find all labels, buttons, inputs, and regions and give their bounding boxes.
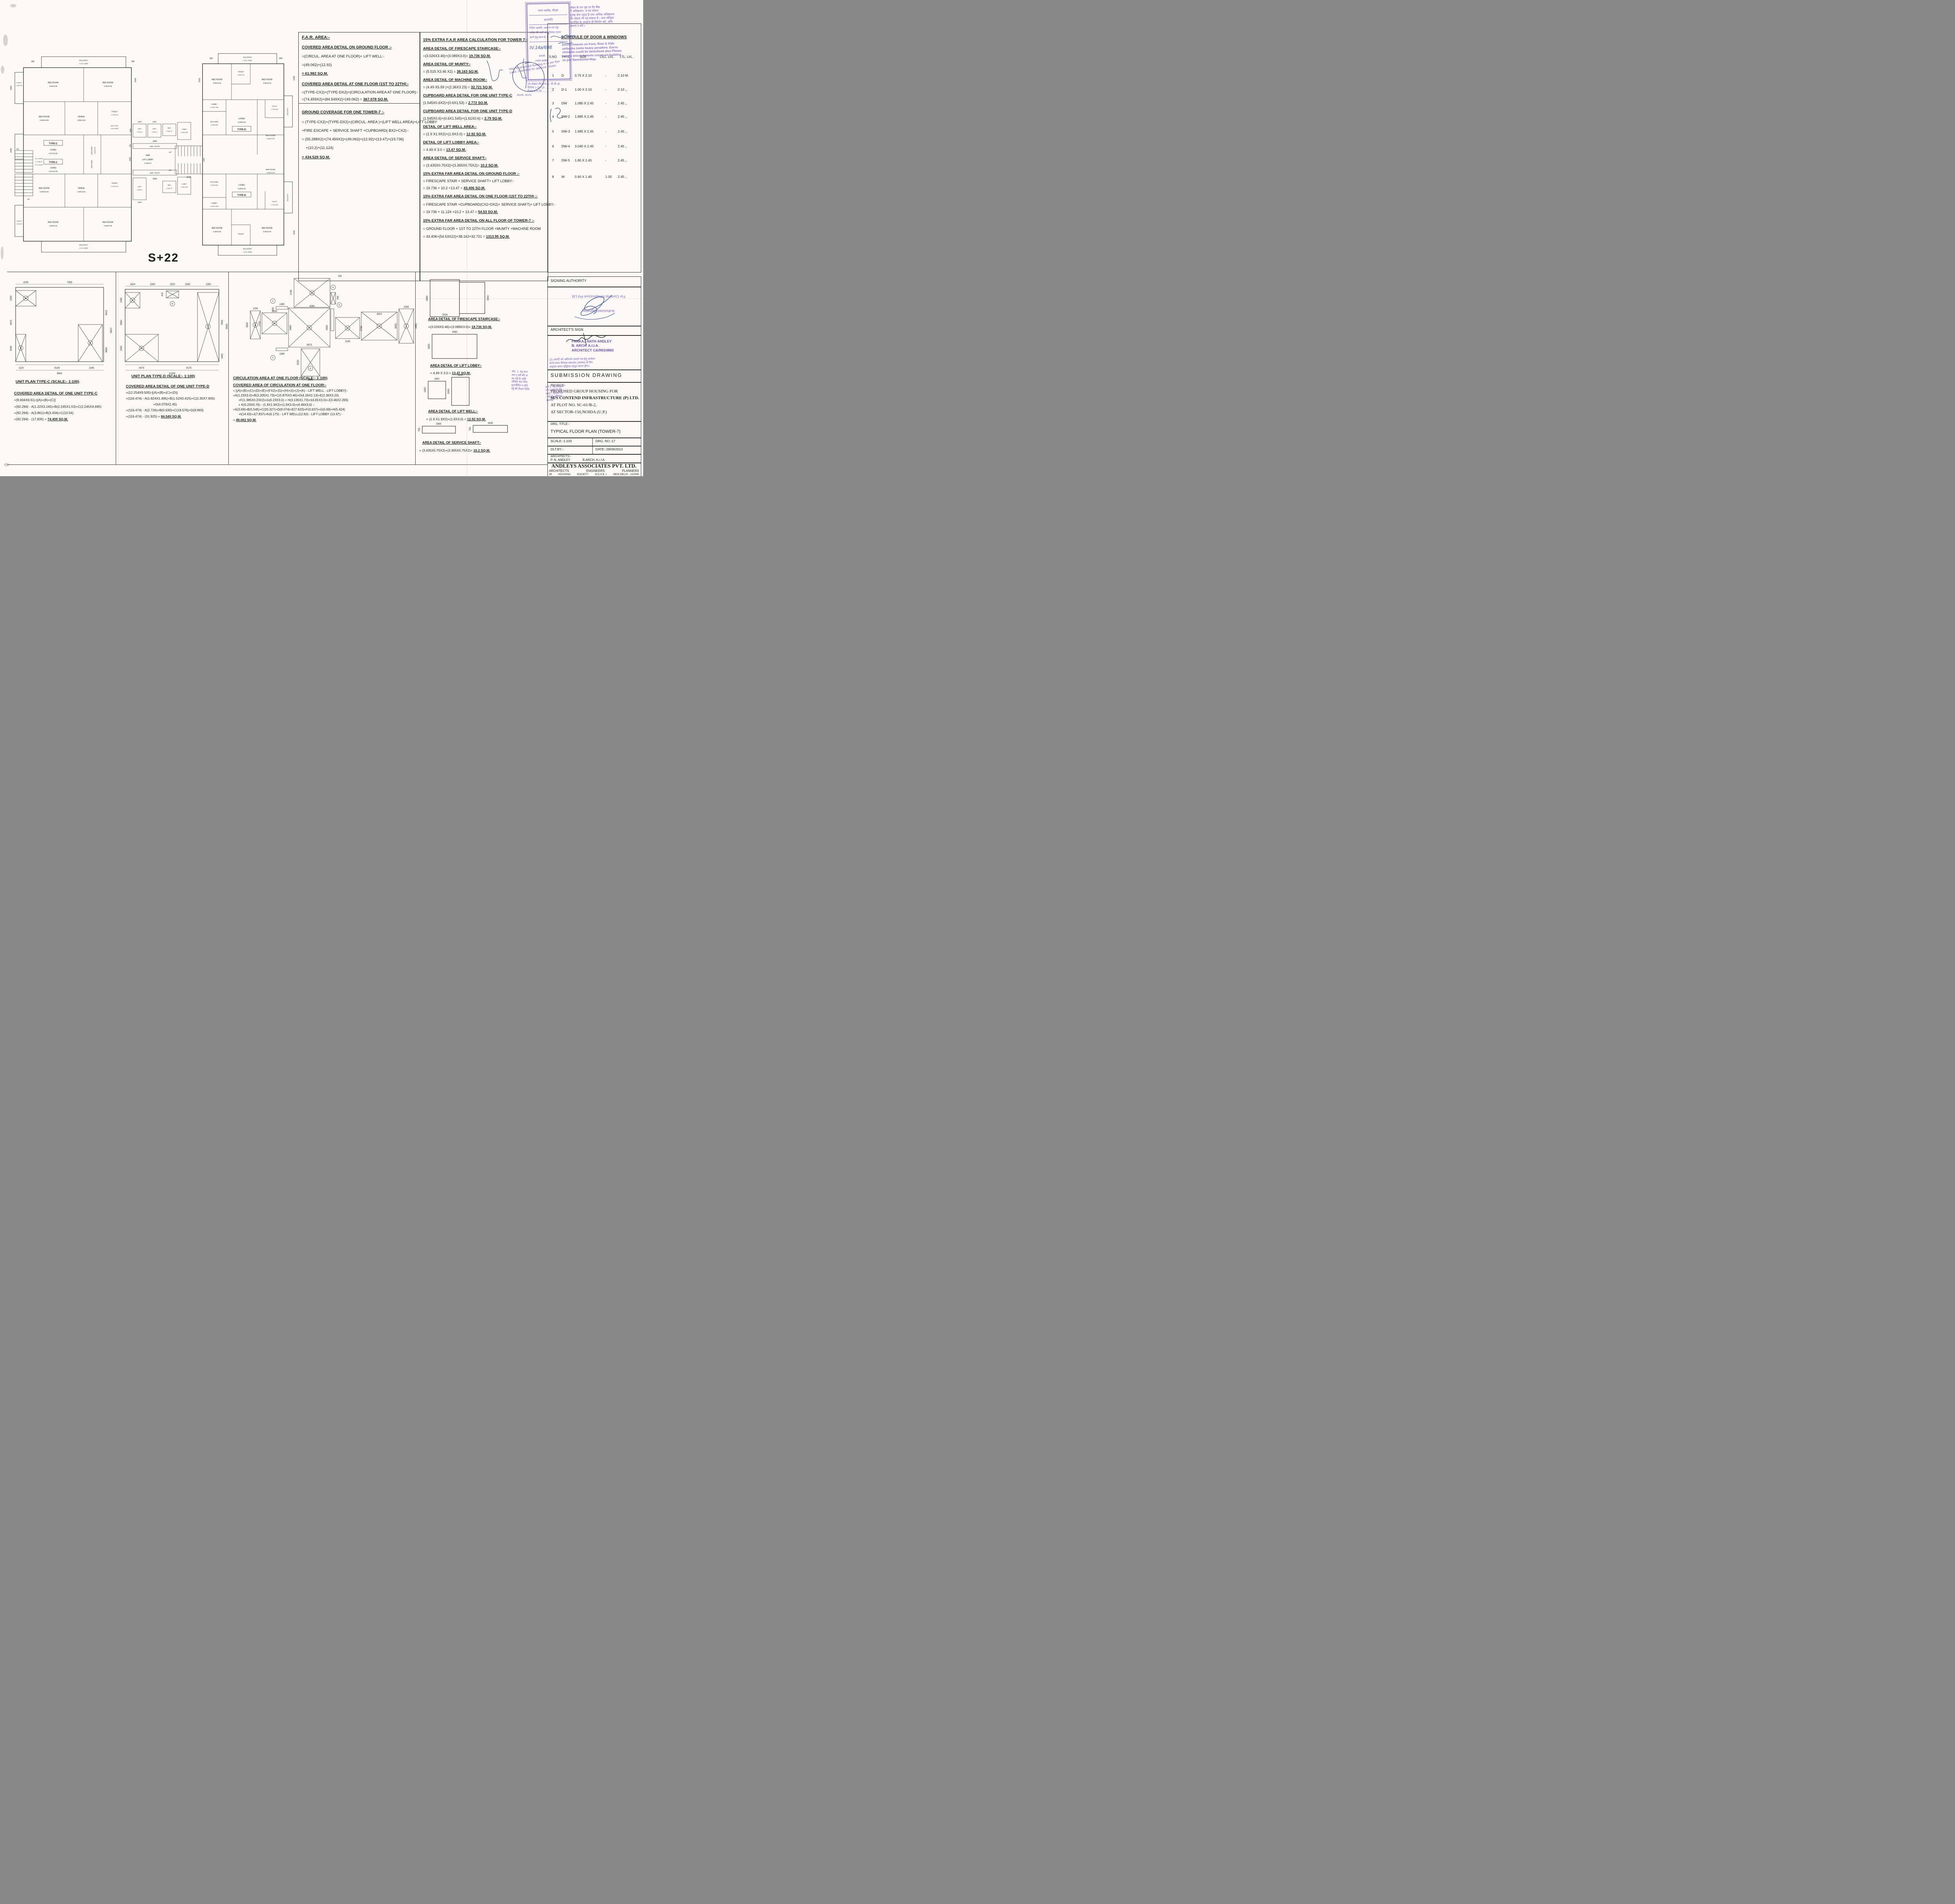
room-size: 2.13x1.52: [16, 223, 22, 225]
dlt-by: DLT.BY.:-: [551, 448, 564, 451]
ref-mark: D: [311, 292, 313, 294]
room-label: BALCONY: [243, 56, 252, 58]
dim-label: 2130: [290, 290, 292, 295]
room-label: BED ROOM: [48, 221, 58, 224]
extra-item-heading: AREA DETAIL OF MUMTY:-: [423, 63, 471, 66]
stair-label: DN: [16, 148, 19, 150]
extra-item-formula: = 43.406+(54.53X22)+38.163+32.721 = 1313…: [423, 235, 509, 239]
room-label: W.C: [168, 127, 171, 129]
lift-well-heading: AREA DETAIL OF LIFT WELL:-: [428, 410, 478, 414]
ref-mark: B: [25, 298, 27, 300]
circulation-line: =A(3.69)+B(5.545)+C(20.327)+D(9.074)+E(7…: [233, 408, 345, 411]
dim-label: 3205: [272, 310, 277, 313]
dim-label: 4695: [106, 347, 108, 353]
stamp-line: भवन प्रकोष्ठ, नौएडा: [527, 8, 569, 13]
schedule-cell: -: [605, 102, 606, 105]
stamp-line: वैधता 5.4.25 .............: [527, 89, 561, 93]
schedule-cell: 4: [552, 115, 554, 118]
circulation-line: = [(A)+(B)+(C)+(D)+(E)+(FX2)+(G)+(H)+(I)…: [233, 389, 348, 393]
dim-label: 2350: [206, 283, 211, 286]
dim-label: 3280: [150, 283, 155, 286]
stamp-line: अनापत्ति: [527, 18, 569, 22]
dim-label: 3000: [448, 389, 450, 394]
room-size: 3.05X3.66: [263, 231, 271, 233]
unit-type-label: TYPE-C: [49, 161, 58, 164]
ground-coverage-result: = 434.528 SQ.M.: [302, 156, 330, 160]
extra-item-heading: CUPBOARD AREA DETAIL FOR ONE UNIT TYPE-D: [423, 109, 512, 113]
room-size: 2.13x1.52: [111, 114, 118, 116]
room-label: KITCHEN: [210, 181, 218, 183]
room-label: KITCHEN: [210, 121, 218, 123]
extra-item-line: = GROUND FLOOR + 1ST TO 22TH FLOOR +MUMT…: [423, 227, 541, 231]
dim-label: 3280: [185, 283, 190, 286]
date-value: DATE:-29/08/2013: [595, 448, 623, 451]
far-s1-line: =(CIRCUL. AREA AT ONE FLOOR)+ LIFT WELL:…: [302, 55, 384, 59]
room-label: BALCONY: [111, 125, 118, 127]
unit-d-heading: COVERED AREA DETAIL OF ONE UNIT TYPE-D: [126, 385, 209, 389]
ref-mark: E: [310, 368, 311, 370]
room-label: BED ROOM: [48, 82, 58, 84]
stair-note: W.=1.50 M.: [35, 158, 43, 160]
room-size: 3.974X3.05: [48, 152, 58, 154]
extra-item-heading: DETAIL OF LIFT WELL AREA:-: [423, 125, 477, 129]
dim-label: 2450: [120, 346, 123, 351]
schedule-cell: -: [605, 88, 606, 91]
dim-label: 7905: [221, 320, 224, 325]
room-label: BALCONY: [79, 244, 88, 246]
dim-label: 9604: [57, 373, 62, 375]
room-size: 2.13X2.335: [181, 186, 188, 188]
unit-d-line: =(116.474) - A(2.726)+B(0.630)+C(18.576)…: [126, 409, 204, 412]
encroachment-stamp-hindi: अंकर के यग पृष्ठ पर मैट बैंक में अतिक्रम…: [570, 5, 615, 28]
schedule-cell: 7: [552, 159, 554, 162]
room-label: BED ROOM: [212, 227, 222, 229]
dim-label: 2245: [89, 367, 94, 369]
dim-label: 3000: [326, 325, 328, 330]
schedule-cell: DW-2: [561, 115, 570, 118]
room-label: BED ROOM: [102, 82, 113, 84]
room-label: BED ROOM: [39, 187, 49, 190]
ground-coverage-line: +(10.2)+(11.124): [306, 146, 334, 150]
stair-label: UP: [169, 151, 171, 153]
stair-label: DN: [169, 169, 172, 171]
schedule-cell: 1.885 X 2.45: [575, 115, 594, 118]
room-label: LOBBY: [181, 183, 187, 185]
dim-label: 1495: [120, 298, 123, 303]
ref-mark: G: [339, 304, 340, 307]
stamp-line: प्रभारी: [539, 55, 545, 58]
room-label: LIVING: [50, 149, 57, 151]
room-size: 3.974X3.05: [48, 170, 58, 172]
schedule-cell: 0.60 X 1.40: [575, 175, 592, 179]
room-size: 1.5 M. WIDE: [111, 128, 119, 129]
ground-coverage-line: = (TYPE-CX2)+(TYPE-DX2)+(CIRCUL. AREA )+…: [302, 120, 437, 124]
dim-label: 600: [279, 57, 283, 60]
room-size: 3.964X3.05: [39, 119, 49, 121]
dim-label: 1500: [203, 158, 205, 162]
extra-item-formula: (1.545X0.6X2)+(0.6X1.53) = 2.772 SQ.M.: [423, 101, 488, 105]
schedule-cell: 2.45 ,,: [618, 159, 627, 162]
dim-label: 1520: [170, 283, 175, 286]
circulation-line: + K(0.23X0.76) - (1.9X1.9X2)+(1.9X3.0)+(…: [239, 403, 315, 407]
dim-label: 3460: [426, 296, 429, 301]
room-label: BALCONY: [79, 59, 88, 61]
dim-label: 3135: [345, 341, 350, 343]
architects-sign-label: ARCHITECT'S SIGN: [551, 328, 583, 332]
room-label: TOILET: [16, 82, 22, 84]
unit-d-result: =(116.474) - (31.925) = 84.549 SQ.M.: [126, 415, 181, 418]
dim-label: 3460: [290, 325, 292, 330]
extra-item-formula: = 19.736 + 10.2 +13.47 = 43.406 SQ.M.: [423, 186, 485, 190]
unit-c-line: =(9.604X9.61)-[(A)+(B)+(C)]: [14, 398, 56, 402]
room-size: 1.5 M. WIDE: [243, 59, 252, 61]
dim-label: 600: [131, 61, 135, 63]
dim-label: 1230: [253, 308, 258, 310]
dim-label: 1385: [279, 303, 285, 306]
schedule-cell: -: [605, 74, 606, 77]
dim-label: 750: [469, 427, 472, 431]
dim-label: 3000: [129, 157, 131, 161]
unit-c-line: =(92.294) - A(3.861)+B(3.434)+C(10.54): [14, 411, 74, 415]
circulation-result: = 49.062 SQ.M.: [233, 418, 256, 422]
room-label: TOILET: [238, 233, 244, 235]
room-label: TOILET: [272, 201, 277, 203]
schedule-cell: 1.080 X 2.45: [575, 102, 594, 105]
schedule-cell: 1.685 X 2.45: [575, 130, 594, 133]
circulation-line: +F(1.385X0.23X2)+G(0.23X3.0) + H(3.135X1…: [239, 398, 348, 402]
schedule-cell: 2.45 ,,: [618, 130, 627, 133]
room-label: LIFT LOBBY: [142, 159, 154, 161]
schedule-cell: DW: [561, 102, 567, 105]
firm-address-part: SOCIETY: [577, 473, 588, 476]
room-label: BED ROOM: [266, 134, 276, 136]
room-label: DINING: [78, 187, 85, 190]
extra-item-formula: =(3.026X3.46)+(3.089X3.0)= 19.736 SQ.M.: [423, 54, 491, 58]
note-stamp: नोट: 1. यह मान लय 5 वर्ष की अ का पट्टे क…: [511, 370, 530, 391]
room-label: BED ROOM: [39, 116, 49, 118]
firm-address: 39 HOUSING SOCIETY N.D.S.E.-I NEW DELHI …: [549, 473, 639, 476]
dim-label: 3000: [395, 323, 397, 329]
architect-qualification: B.ARCH. A.I.I.A.: [583, 459, 605, 462]
ref-mark: A: [255, 324, 256, 326]
schedule-cell: DW-4: [561, 145, 570, 148]
schedule-cell: 2.10 M.: [618, 74, 629, 77]
drg-no: DRG. NO.:17: [595, 439, 615, 443]
dim-label: 750: [418, 427, 421, 432]
room-size: 4.49X3.0: [144, 162, 152, 164]
schedule-cell: 1.05: [605, 175, 612, 179]
extra-item-heading: 15% EXTRA FAR AREA DETAIL ON ALL FLOOR O…: [423, 219, 534, 223]
room-label: LIVING: [50, 167, 57, 169]
extra-item-heading: DETAIL OF LIFT LOBBY AREA:-: [423, 141, 479, 145]
dim-label: 5875: [307, 344, 312, 346]
room-size: 2.13x1.52: [111, 185, 118, 187]
dim-label: 1900: [129, 128, 131, 133]
dim-label: 4490: [452, 331, 457, 333]
typical-floor-plan: DN UP W.=1.50 M. T.=0.30 M. R.=0.15 M. B…: [7, 22, 298, 272]
room-size: 2.12x1.37: [166, 131, 172, 132]
room-size: 2.13X2.335: [181, 132, 188, 133]
ref-mark: A: [20, 347, 22, 350]
dim-label: 1824: [130, 283, 135, 286]
schedule-cell: 3.040 X 2.45: [575, 145, 594, 148]
dim-label: 3000: [487, 295, 490, 301]
room-size: 2.13X2.335: [210, 205, 219, 207]
lift-well-formula: = (1.9 X1.9X2)+(1.9X3.0) = 12.92 SQ.M.: [426, 418, 486, 421]
dim-label: 1545: [135, 78, 137, 82]
room-size: 2.12x1.37: [166, 188, 172, 189]
dim-label: 1900: [138, 121, 142, 123]
schedule-cell: -: [605, 130, 606, 133]
dim-label: 1730: [259, 321, 261, 326]
ref-mark: F: [272, 357, 274, 359]
far-s1-heading: COVERED AREA DETAIL ON GROUND FLOOR :-: [302, 45, 392, 50]
dim-label: 760: [337, 296, 339, 300]
unit-type-label: TYPE-D: [237, 194, 246, 197]
far-s2-line: =(TYPE-CX2)+(TYPE-DX2)+(CIRCULATION AREA…: [302, 91, 418, 95]
dim-label: 1495: [293, 76, 296, 80]
room-label: BALCONY: [287, 194, 289, 201]
schedule-cell: 1.80 X 2.45: [575, 159, 592, 162]
dim-label: 1600: [221, 353, 224, 359]
far-s1-result: = 61.982 SQ.M.: [302, 72, 328, 76]
room-size: 3.05X3.05: [77, 119, 86, 121]
firm-name: ANDLEYS ASSOCIATES PVT. LTD.: [547, 463, 640, 469]
dim-label: 7359: [67, 281, 72, 284]
room-size: 3.35X5.50: [238, 188, 246, 190]
signing-authority-label: SIGNING AUTHORITY: [551, 279, 586, 283]
extra-item-line: = FIRESCAPE STAIR +CUPBOARD(CX2+DX2)+ SE…: [423, 203, 555, 207]
encroachment-stamp-english: Encrochments on front, Rear & Side setba…: [562, 41, 622, 62]
room-label: LIVING: [239, 184, 245, 186]
stair-label: UP: [27, 198, 30, 200]
schedule-cell: 2.45 ,,: [618, 115, 627, 118]
dim-label: 230: [338, 275, 342, 278]
room-label: BED ROOM: [212, 79, 222, 81]
unit-c-line: =(92.294) - A(1.22X3.165)+B(2.245X1.53)+…: [14, 405, 101, 409]
room-size: 2.13x1.52: [16, 85, 22, 86]
extra-item-formula: (1.545X0.6)+(0.6X1.545)+(1.61X0.6) = 2.7…: [423, 117, 502, 121]
room-size: 2.13X3.05: [211, 184, 218, 186]
firm-address-part: NEW DELHI - 110049: [613, 473, 639, 476]
scan-smudge: [1, 66, 4, 74]
ref-mark: K: [332, 287, 334, 289]
scale-value: SCALE:-1:100: [551, 439, 572, 443]
asstt-arch-stamp: Asstt. Arch.: [517, 93, 532, 97]
ref-mark: C: [308, 327, 310, 329]
unit-c-title: UNIT PLAN TYPE-C (SCALE:- 1:100): [16, 380, 79, 384]
dim-label: 415: [161, 292, 164, 296]
drg-title-label: DRG. TITLE:-: [551, 423, 570, 426]
room-label: TOILET: [238, 71, 244, 73]
dim-label: 4810: [377, 313, 382, 316]
stamp-line: पट्टे की वैधता तिथि: [511, 387, 529, 391]
dim-label: 1385: [279, 353, 285, 355]
unit-type-label: TYPE-D: [237, 129, 246, 131]
stamp-line: निदेश-आबंटी, आबंटन एवं पट्टा: [529, 27, 558, 30]
room-label: TOILET: [16, 220, 22, 222]
room-size: 1.9X3.0: [137, 189, 143, 191]
schedule-cell: -: [605, 159, 606, 162]
project-line: AT PLOT NO. SC-01/B-2,: [551, 403, 597, 407]
stamp-ref-lines: पत्र संख्या नौएडा/भ.प्र. वी.वी.आ. दिनांक…: [527, 82, 561, 93]
room-label: BALCONY: [287, 108, 289, 115]
room-size: 3.05X3.05: [77, 191, 86, 193]
schedule-header: LTL. LVL.: [620, 56, 633, 59]
room-size: 3.05X3.66: [213, 231, 221, 233]
room-size: 1.9X1.9: [152, 131, 158, 133]
firm-roles: ARCHITECTS ENGINEERS PLANNERS: [549, 469, 639, 473]
schedule-cell: W: [561, 175, 565, 179]
dim-label: 4079: [139, 367, 144, 369]
unit-d-line: =(116.474) - A(1.824X1.495)+B(1.52X0.415…: [126, 397, 215, 400]
room-size: 3.05X3.66: [213, 82, 221, 84]
ref-mark: C: [90, 342, 91, 344]
schedule-cell: 3: [552, 102, 554, 105]
room-label: LOBBY: [211, 202, 217, 204]
schedule-cell: -: [605, 145, 606, 148]
ref-mark: J: [406, 325, 407, 328]
room-label: KITCHEN: [91, 147, 93, 154]
dim-label: 600: [31, 61, 35, 63]
room-label: LIFT: [152, 128, 156, 130]
room-label: SER. SHAFT: [150, 145, 160, 147]
detail-diagrams: A B C 2245 7359 1530 4915 3165 1220 6139…: [7, 272, 547, 464]
dim-label: 9610: [110, 328, 113, 333]
circulation-line: =A(1.23X3.0)+B(3.205X1.73)+C(5.875X3.46)…: [233, 394, 339, 397]
room-size: 3.05X3.66: [263, 82, 271, 84]
room-label: W.C: [168, 184, 171, 186]
dim-label: 3026: [442, 314, 448, 316]
dim-label: 4490: [145, 154, 150, 157]
stamp-line: करने हेतु बाध्य है ।: [530, 36, 547, 39]
occupancy-stamp: (2) आवंटी को अधिभोग प्रमाण पत्र हेतु आवे…: [549, 358, 595, 369]
room-size: 2.13X2.335: [210, 106, 219, 108]
room-label: TOILET: [272, 105, 277, 107]
room-size: 1.9X1.9: [137, 131, 143, 133]
unit-c-heading: COVERED AREA DETAIL OF ONE UNIT TYPE-C: [14, 392, 97, 396]
ground-coverage-line: +FIRE ESCAPE + SERVICE SHAFT +CUPBOARD( …: [302, 129, 409, 133]
dim-label: 600: [210, 57, 213, 60]
dim-label: 4915: [106, 310, 108, 316]
extra-item-line: = FIRESCAPE STAIR + SERVICE SHAFT+ LIFT …: [423, 179, 514, 183]
dim-label: 1900: [138, 201, 142, 203]
extra-item-heading: 15% EXTRA FAR AREA DETAIL ON GROUND FLOO…: [423, 172, 520, 176]
ref-mark: A: [132, 299, 133, 302]
room-label: LOBBY: [181, 128, 187, 130]
extra-item-formula: = 19.736 + 11.124 +10.2 + 13.47 = 54.53 …: [423, 210, 498, 214]
drg-title: TYPICAL FLOOR PLAN (TOWER-7): [551, 429, 621, 434]
dim-label: 1530: [10, 296, 13, 301]
dim-label: 6139: [54, 367, 60, 369]
extra-item-formula: = (3.435X0.75X2)+(3.365X0.75X2)= 10.2 SQ…: [423, 164, 498, 168]
project-line: AT SECTOR-150,NOIDA (U.P.): [551, 410, 607, 414]
schedule-cell: DW-5: [561, 159, 570, 162]
dim-label: 3230: [297, 360, 300, 365]
schedule-cell: D-1: [561, 88, 567, 91]
lease-condition-stamp: शर्त 1. यह स्वीकृति पत्र 5 वर्ष हेतु वैध…: [545, 385, 565, 403]
firm-address-part: HOUSING: [558, 473, 571, 476]
ref-mark: C: [207, 326, 209, 328]
dim-label: 3365: [152, 140, 157, 143]
dim-label: 1900: [434, 378, 439, 380]
architects-label: ARCHITECTS:-: [551, 455, 571, 458]
firescape-formula: =(3.026X3.46)+(3.089X3.0)= 19.736 SQ.M.: [428, 325, 492, 329]
submission-title: SUBMISSION DRAWING: [551, 373, 622, 378]
stair-note: R.=0.15 M.: [35, 164, 43, 166]
schedule-cell: 1.00 X 2.10: [575, 88, 592, 91]
room-size: 1.52x2.13: [237, 74, 244, 76]
room-label: BALCONY: [243, 248, 252, 250]
room-size: 1.5 M. WIDE: [79, 63, 88, 65]
firm-address-part: N.D.S.E.-I: [595, 473, 607, 476]
service-shaft-formula: = (3.435X0.75X2)+(3.365X0.75X2)= 10.2 SQ…: [419, 449, 490, 452]
dim-label: 3435: [488, 422, 493, 425]
ref-mark: F: [272, 300, 274, 303]
room-label: BED ROOM: [102, 221, 113, 224]
unit-type-label: TYPE-C: [49, 143, 58, 145]
room-size: 1.5 M. WIDE: [243, 251, 252, 253]
firm-role: ARCHITECTS: [549, 469, 569, 473]
schedule-cell: -: [605, 115, 606, 118]
dim-label: 3165: [10, 346, 13, 351]
room-size: 3.964X3.05: [39, 191, 49, 193]
schedule-cell: 5: [552, 130, 554, 133]
unit-d-line: =(12.254X9.505)-[(A)+(B)+(C)+(D)]: [126, 391, 178, 394]
architect-stamp: PANKAJ NATH ANDLEY B. ARCH. A.I.I.A. ARC…: [572, 339, 614, 353]
room-label: TOILET: [111, 111, 118, 113]
dim-label: 1900: [424, 387, 427, 393]
room-size: 1.71x2.165: [271, 204, 278, 206]
room-size: 3.964X3.05: [267, 172, 275, 174]
stair-note: T.=0.30 M.: [35, 161, 43, 163]
dim-label: 4260: [309, 305, 315, 308]
far-s1-line: =(49.062)+(12.92): [302, 63, 332, 67]
dim-label: 1900: [152, 121, 157, 123]
dim-label: 2245: [23, 281, 29, 284]
room-label: TOILET: [111, 182, 118, 184]
room-label: BED ROOM: [262, 79, 272, 81]
room-label: LIVING: [239, 118, 245, 120]
room-size: 1.82X3.05: [94, 147, 96, 154]
schedule-cell: DW-3: [561, 130, 570, 133]
extra-far-title: 15% EXTRA F.A.R AREA CALCULATION FOR TOW…: [423, 38, 527, 42]
dim-label: 4730: [187, 176, 191, 179]
extra-item-heading: CUPBOARD AREA DETAIL FOR ONE UNIT TYPE-C: [423, 94, 512, 98]
room-size: 1.5 M. WIDE: [79, 247, 88, 249]
dim-label: 3365: [152, 178, 157, 180]
room-label: DINING: [78, 116, 85, 118]
extra-item-heading: AREA DETAIL OF FIRESCAPE STAIRCASE:-: [423, 47, 501, 51]
schedule-cell: 8: [552, 175, 554, 179]
lift-lobby-formula: = 4.49 X 3.0 = 13.47 SQ.M.: [430, 371, 470, 375]
ground-coverage-line: = (55.288X2)+(74.459X2)+(49.062)+(12.92)…: [302, 138, 404, 142]
room-label: LOBBY: [211, 103, 217, 105]
schedule-cell: 2.45 ,,: [618, 145, 627, 148]
schedule-cell: 2.45 ,,: [618, 102, 627, 105]
firm-address-part: 39: [549, 473, 552, 476]
unit-c-result: =(92.294) - (17.835) = 74.459 SQ.M.: [14, 418, 68, 421]
dim-label: 750: [129, 144, 131, 147]
scan-smudge: [10, 4, 16, 7]
far-s2-heading: COVERED AREA DETAIL AT ONE FLOOR (1ST TO…: [302, 82, 409, 86]
dim-label: 5560: [120, 320, 123, 325]
schedule-cell: 0.75 X 2.10: [575, 74, 592, 77]
room-label: KITCHEN: [91, 160, 93, 168]
circulation-title: CIRCULATION AREA AT ONE FLOOR (SCALE:- 1…: [233, 376, 327, 380]
room-size: 3.35X5.50: [238, 121, 246, 123]
dim-label: 2265: [404, 306, 409, 308]
